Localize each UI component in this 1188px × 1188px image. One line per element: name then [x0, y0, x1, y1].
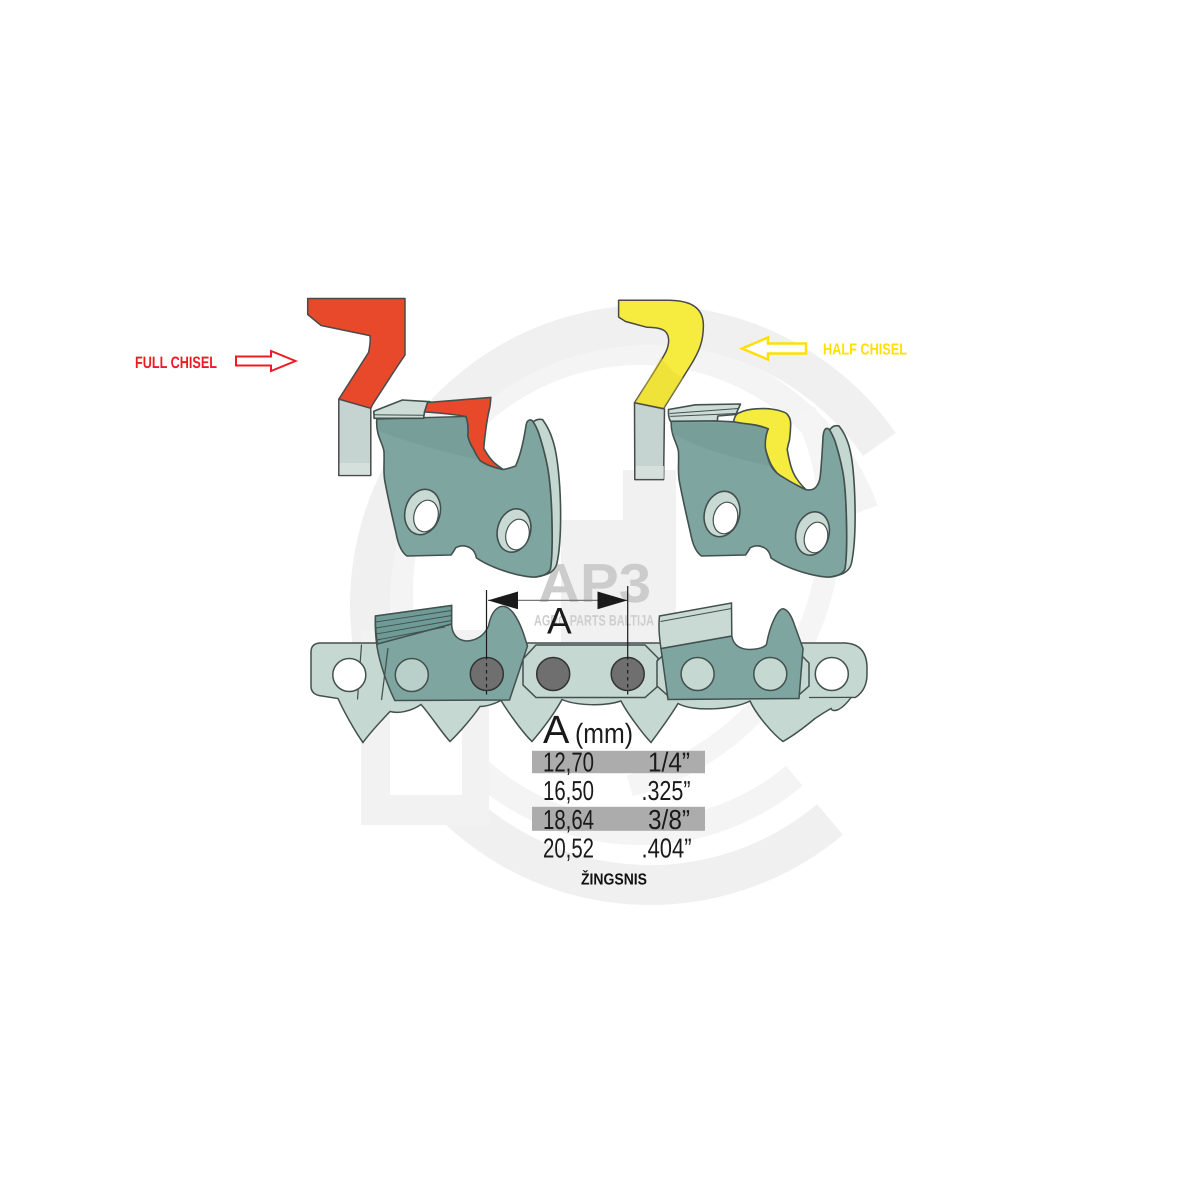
svg-text:16,50: 16,50 [543, 775, 594, 806]
svg-text:HALF CHISEL: HALF CHISEL [823, 342, 907, 359]
svg-text:1/4”: 1/4” [648, 747, 690, 778]
svg-text:18,64: 18,64 [543, 804, 594, 835]
svg-text:12,70: 12,70 [543, 747, 594, 778]
svg-text:.325”: .325” [642, 775, 691, 806]
svg-text:(mm): (mm) [575, 718, 633, 749]
svg-text:A: A [543, 708, 570, 752]
svg-text:FULL CHISEL: FULL CHISEL [135, 354, 217, 372]
svg-text:3/8”: 3/8” [648, 804, 690, 835]
svg-text:.404”: .404” [642, 833, 692, 864]
svg-text:20,52: 20,52 [543, 833, 594, 864]
svg-text:A: A [547, 601, 572, 642]
svg-text:ŽINGSNIS: ŽINGSNIS [581, 870, 647, 889]
